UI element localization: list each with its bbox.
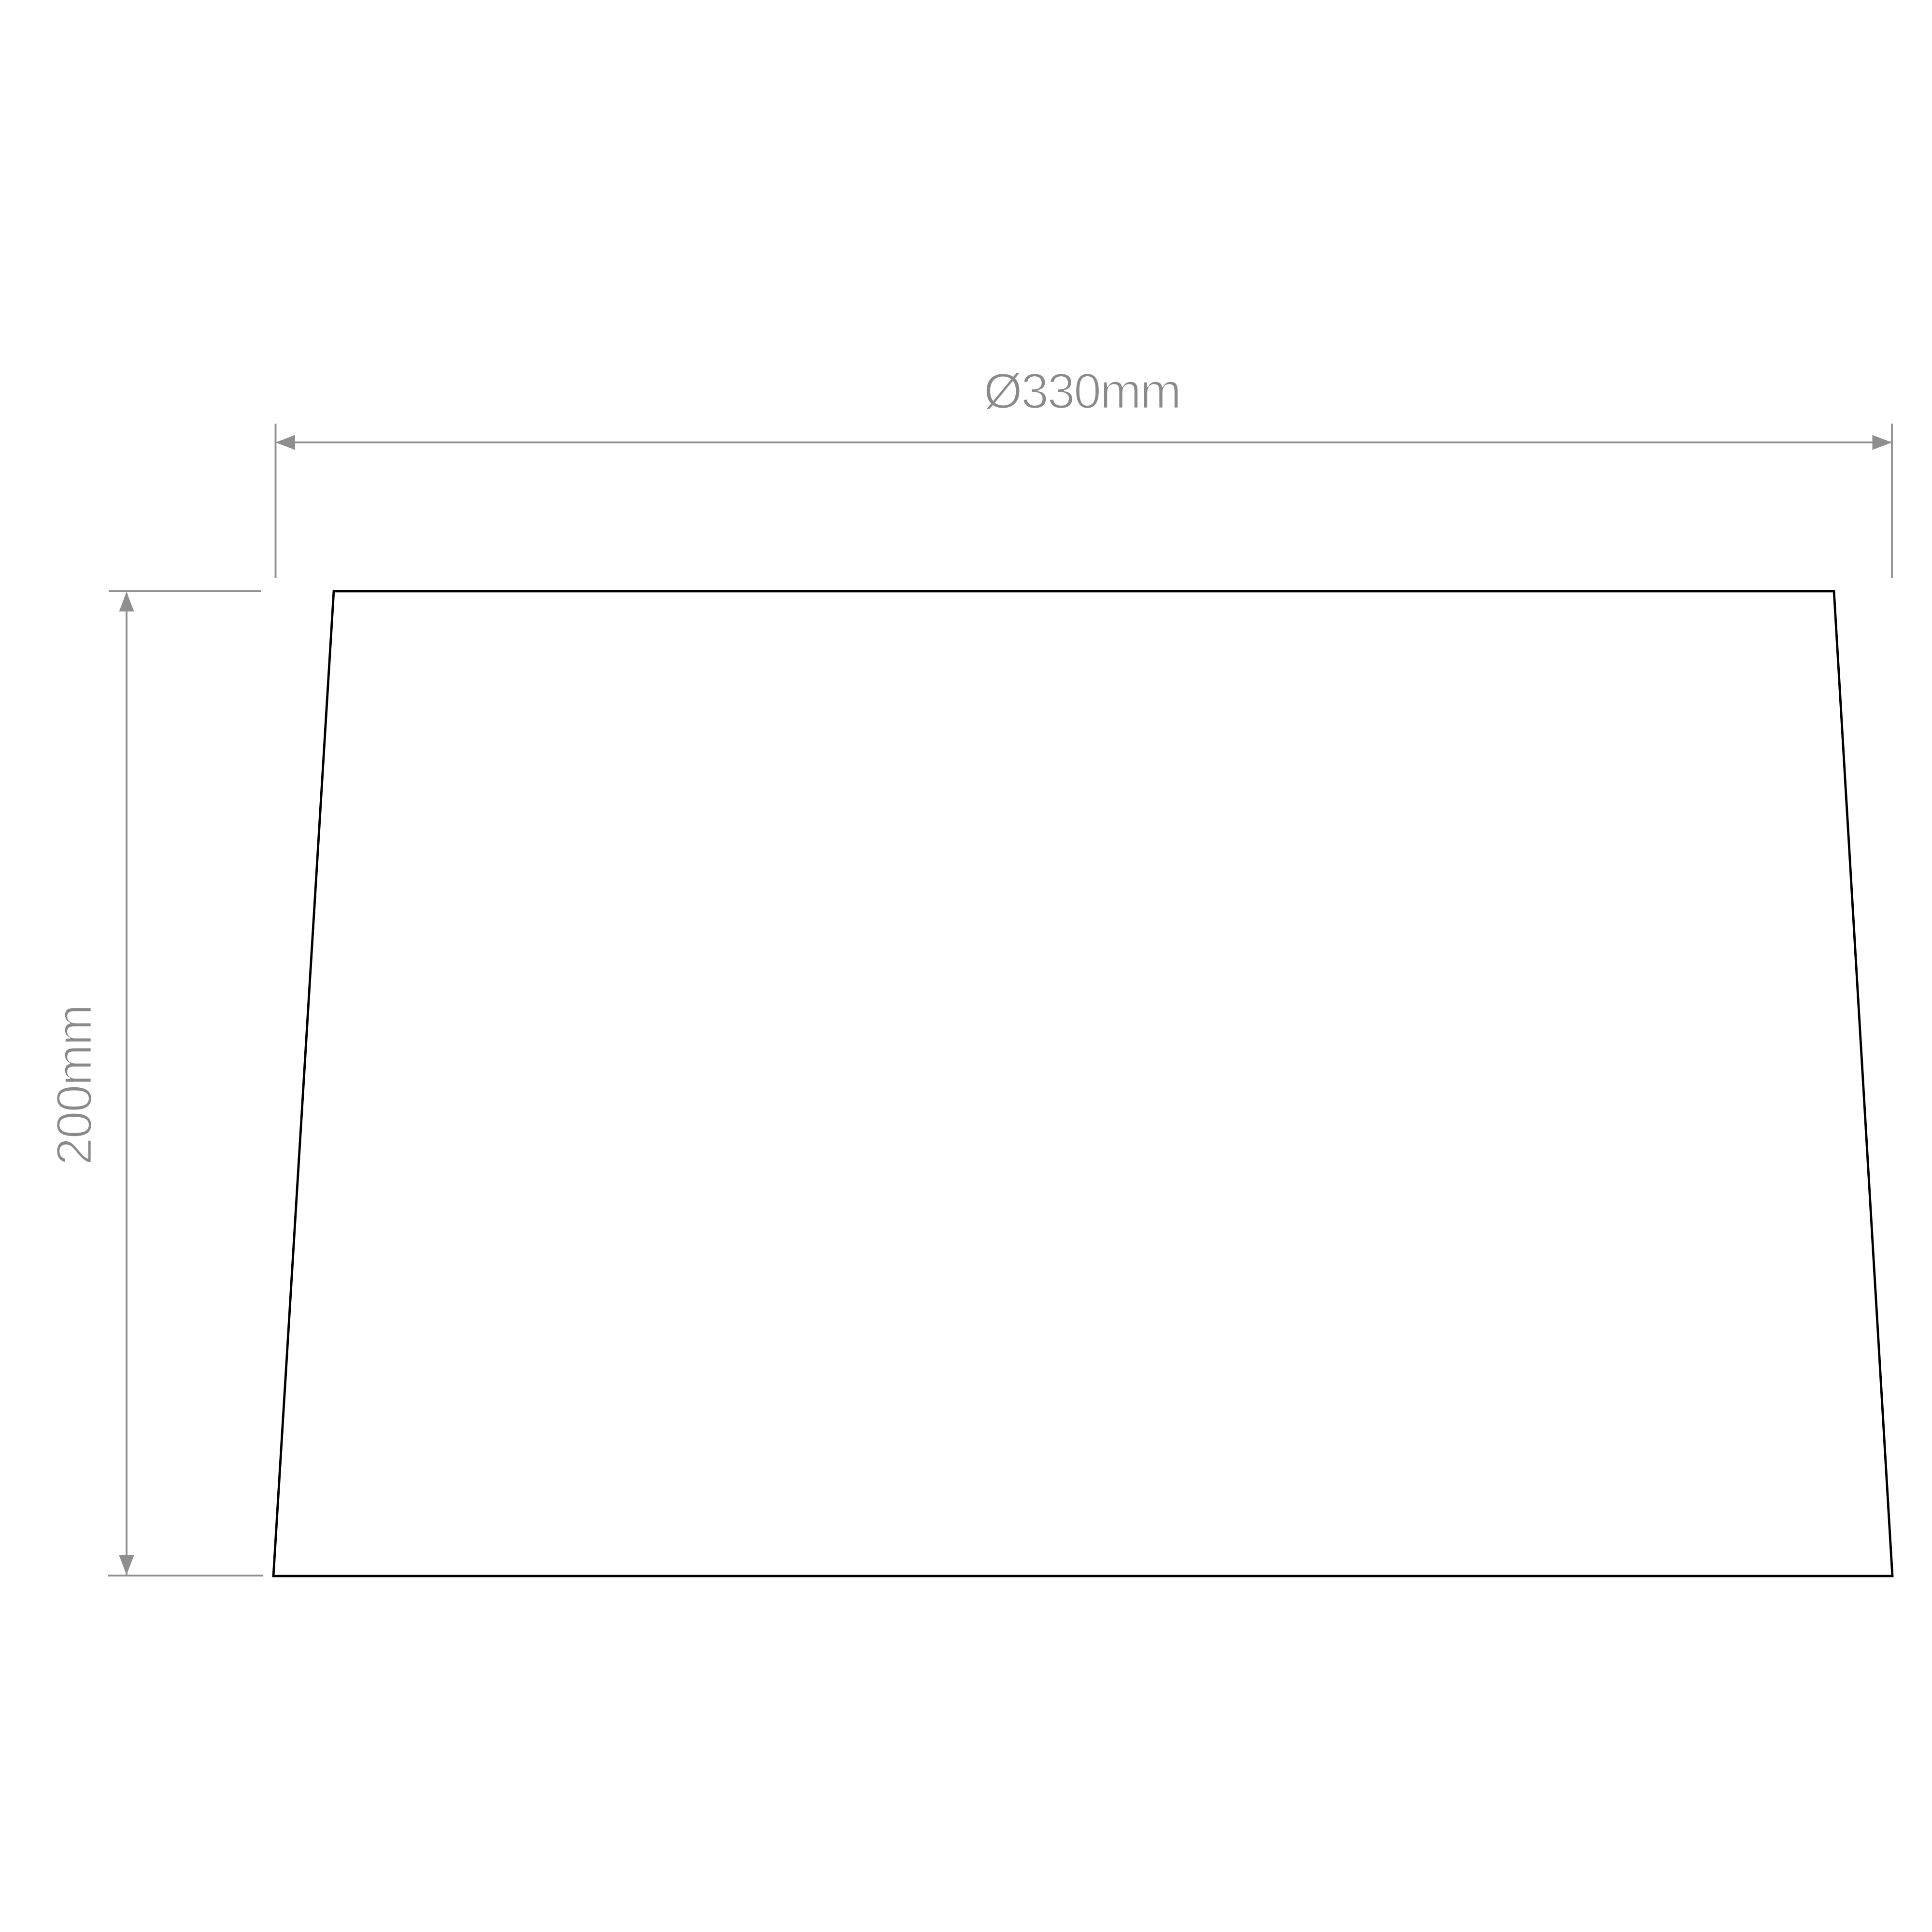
svg-text:Ø330mm: Ø330mm xyxy=(984,363,1180,419)
svg-text:200mm: 200mm xyxy=(46,1006,102,1165)
